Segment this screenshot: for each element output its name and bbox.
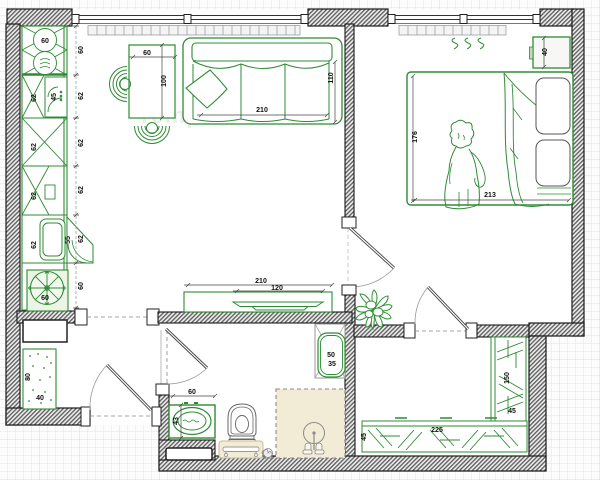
svg-text:50: 50 [327, 352, 335, 359]
svg-text:62: 62 [31, 94, 38, 102]
svg-text:60: 60 [188, 389, 196, 396]
svg-text:120: 120 [271, 285, 283, 292]
svg-text:45: 45 [51, 93, 58, 101]
svg-text:60: 60 [41, 38, 49, 45]
svg-text:62: 62 [78, 92, 85, 100]
svg-text:213: 213 [484, 192, 496, 199]
svg-text:60: 60 [143, 50, 151, 57]
svg-text:35: 35 [328, 361, 336, 368]
svg-text:176: 176 [412, 131, 419, 143]
svg-text:150: 150 [504, 372, 511, 384]
svg-text:110: 110 [328, 72, 335, 83]
svg-text:225: 225 [431, 427, 443, 434]
svg-text:62: 62 [31, 241, 38, 249]
svg-text:60: 60 [78, 46, 85, 54]
svg-text:210: 210 [255, 278, 267, 285]
svg-text:60: 60 [78, 282, 85, 290]
svg-text:62: 62 [78, 235, 85, 243]
svg-text:55: 55 [65, 236, 72, 244]
svg-text:40: 40 [36, 395, 44, 402]
svg-text:45: 45 [508, 408, 516, 415]
svg-text:45: 45 [361, 433, 368, 441]
svg-text:40: 40 [542, 48, 549, 56]
svg-text:100: 100 [161, 75, 168, 87]
svg-text:80: 80 [25, 373, 32, 381]
svg-text:62: 62 [31, 143, 38, 151]
svg-text:43: 43 [173, 417, 180, 425]
svg-text:62: 62 [78, 186, 85, 194]
svg-text:210: 210 [256, 107, 268, 114]
svg-text:60: 60 [41, 295, 49, 302]
svg-text:62: 62 [78, 139, 85, 147]
svg-text:62: 62 [31, 192, 38, 200]
